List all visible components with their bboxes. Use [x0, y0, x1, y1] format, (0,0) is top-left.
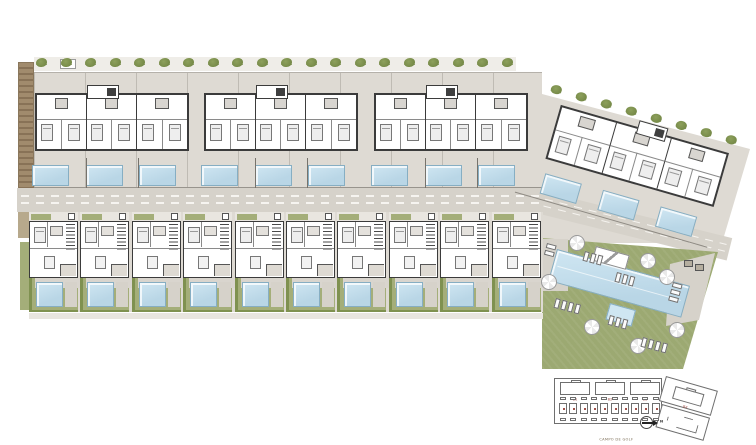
plan-terrace — [317, 264, 333, 276]
tree-icon — [725, 134, 738, 146]
bed — [457, 124, 469, 141]
bed — [380, 124, 392, 141]
tree-icon — [208, 58, 219, 67]
room-wall-line — [331, 119, 332, 149]
apartment-unit — [206, 95, 256, 149]
apartment-unit — [137, 95, 187, 149]
bed — [664, 167, 682, 187]
plan-terrace — [60, 264, 76, 276]
room-wall-line — [407, 222, 408, 247]
tree-icon — [257, 58, 268, 67]
private-pool — [87, 282, 114, 307]
tree-icon — [85, 58, 96, 67]
dining-table — [301, 256, 312, 269]
parasol-icon — [569, 235, 585, 251]
bed — [41, 124, 53, 141]
room-wall-line — [184, 248, 231, 249]
plan-terrace — [163, 264, 179, 276]
tree-icon — [330, 58, 341, 67]
keyplan-townhouse — [621, 403, 629, 414]
townhouse-plan — [29, 221, 78, 278]
terrace-divider — [307, 158, 308, 188]
private-pool — [425, 165, 462, 186]
keyplan-garage — [642, 397, 648, 400]
room-wall-line — [510, 222, 511, 247]
keyplan-unit-label-dot — [645, 408, 647, 410]
apartment-unit — [87, 95, 137, 149]
keyplan-townhouse — [641, 403, 649, 414]
bed — [91, 124, 103, 141]
private-pool — [344, 282, 371, 307]
private-pool — [139, 165, 176, 186]
garden-deck — [322, 282, 334, 307]
townhouse — [286, 212, 335, 312]
room-wall-line — [338, 248, 385, 249]
private-pool — [371, 165, 408, 186]
tree-icon — [379, 58, 390, 67]
room-wall-line — [390, 248, 437, 249]
room-wall-line — [111, 119, 112, 149]
room-wall-line — [230, 119, 231, 149]
room-wall-line — [304, 222, 305, 247]
tree-icon — [502, 58, 513, 67]
dining-table — [250, 256, 261, 269]
garden-deck — [65, 282, 77, 307]
wet-core — [494, 98, 508, 109]
keyplan-building-bump — [686, 387, 696, 393]
keyplan-unit-label-dot — [594, 408, 596, 410]
garden-deck — [116, 282, 128, 307]
keyplan-unit-label-dot — [625, 408, 627, 410]
entry-planter — [391, 214, 411, 220]
room-wall-line — [493, 248, 540, 249]
tree-icon — [453, 58, 464, 67]
tree-icon — [575, 91, 588, 103]
wet-core — [274, 98, 288, 109]
private-pool — [308, 165, 345, 186]
apartment-unit — [37, 95, 87, 149]
keyplan-building-bump — [606, 380, 616, 383]
bath-block — [50, 226, 63, 236]
road-lane-dash — [21, 195, 541, 197]
room-wall-line — [98, 222, 99, 247]
bed — [85, 227, 97, 243]
room-wall-line — [441, 248, 488, 249]
tree-icon — [134, 58, 145, 67]
tree-icon — [477, 58, 488, 67]
keyplan-garage — [581, 418, 587, 421]
townhouse — [389, 212, 438, 312]
tree-icon — [428, 58, 439, 67]
room-wall-line — [47, 222, 48, 247]
keyplan-unit-label-dot — [615, 408, 617, 410]
keyplan-building: B4 — [672, 386, 704, 407]
terrace-divider — [86, 158, 87, 188]
bed — [142, 124, 154, 141]
tree-icon — [110, 58, 121, 67]
townhouse-plan — [183, 221, 232, 278]
room-wall-line — [287, 248, 334, 249]
keyplan-garage — [601, 397, 607, 400]
private-pool — [499, 282, 526, 307]
room-wall-line — [355, 222, 356, 247]
apartment-unit — [376, 95, 426, 149]
keyplan-building: B1 — [560, 382, 590, 395]
bath-block — [513, 226, 526, 236]
wet-core — [394, 98, 408, 109]
private-pool — [255, 165, 292, 186]
parasol-icon — [541, 274, 557, 290]
townhouse — [183, 212, 232, 312]
room-wall-line — [629, 153, 638, 181]
keyplan-townhouse — [569, 403, 577, 414]
entry-planter — [339, 214, 359, 220]
entry-box — [274, 213, 281, 220]
wet-core — [578, 116, 596, 130]
plan-terrace — [266, 264, 282, 276]
private-pool — [190, 282, 217, 307]
bed — [68, 124, 80, 141]
bed — [118, 124, 130, 141]
room-wall-line — [81, 248, 128, 249]
bath-block — [410, 226, 423, 236]
dining-table — [455, 256, 466, 269]
townhouse — [29, 212, 78, 312]
tree-icon — [306, 58, 317, 67]
garden-deck — [528, 282, 540, 307]
keyplan-building: B2 — [595, 382, 625, 395]
plan-terrace — [523, 264, 539, 276]
wet-core — [155, 98, 169, 109]
private-garden — [80, 278, 129, 312]
keyplan-garage — [632, 397, 638, 400]
tree-icon — [625, 105, 638, 117]
bed — [311, 124, 323, 141]
entry-box — [479, 213, 486, 220]
entry-planter — [185, 214, 205, 220]
keyplan-caption-text: CAMPO DE GOLF — [599, 438, 633, 442]
tree-icon — [159, 58, 170, 67]
private-garden — [286, 278, 335, 312]
dining-table — [44, 256, 55, 269]
keyplan-garage — [601, 418, 607, 421]
road — [17, 188, 545, 212]
tree-icon — [600, 98, 613, 110]
townhouse-plan — [286, 221, 335, 278]
keyplan-building-bump — [571, 380, 581, 383]
private-garden — [337, 278, 386, 312]
private-pool — [540, 173, 582, 204]
apartment-unit — [657, 139, 726, 205]
private-garden — [29, 278, 78, 312]
private-pool — [597, 190, 639, 221]
keyplan-unit-label-dot — [604, 408, 606, 410]
keyplan-garage — [622, 418, 628, 421]
keyplan-unit-label-dot — [635, 408, 637, 410]
lower-path-strip — [29, 313, 543, 319]
north-label: N — [660, 420, 663, 424]
private-garden — [389, 278, 438, 312]
apartment-unit — [426, 95, 476, 149]
dining-table — [404, 256, 415, 269]
keyplan-townhouse — [590, 403, 598, 414]
plan-terrace — [471, 264, 487, 276]
parasol-icon — [584, 319, 600, 335]
entry-planter — [82, 214, 102, 220]
townhouse-plan — [492, 221, 541, 278]
bed — [34, 227, 46, 243]
private-pool — [293, 282, 320, 307]
tree-icon — [281, 58, 292, 67]
terrace-divider — [255, 158, 256, 188]
dining-table — [352, 256, 363, 269]
tree-icon — [232, 58, 243, 67]
room-wall-line — [501, 119, 502, 149]
room-wall-line — [574, 137, 583, 165]
keyplan-townhouse — [652, 403, 660, 414]
apartment-building — [204, 93, 358, 151]
bed — [291, 227, 303, 243]
townhouse — [337, 212, 386, 312]
room-wall-line — [400, 119, 401, 149]
garden-deck — [373, 282, 385, 307]
planter-box — [684, 260, 693, 267]
plan-terrace — [214, 264, 230, 276]
entry-planter — [237, 214, 257, 220]
bed — [584, 144, 601, 164]
terrace-divider — [477, 158, 478, 188]
tree-icon — [355, 58, 366, 67]
private-pool — [36, 282, 63, 307]
terrace-divider — [425, 158, 426, 188]
entry-planter — [442, 214, 462, 220]
terrace-divider — [138, 158, 139, 188]
room-wall-line — [280, 119, 281, 149]
private-garden — [440, 278, 489, 312]
keyplan-garage — [612, 418, 618, 421]
entry-planter — [134, 214, 154, 220]
keyplan-garage — [560, 397, 566, 400]
tree-icon — [61, 58, 72, 67]
keyplan-garage — [560, 418, 566, 421]
wet-core — [324, 98, 338, 109]
entry-box — [119, 213, 126, 220]
entry-box — [171, 213, 178, 220]
keyplan-building: B3 — [630, 382, 660, 395]
keyplan-garage — [622, 397, 628, 400]
garden-deck — [271, 282, 283, 307]
roof-hatch — [276, 88, 285, 96]
dining-table — [198, 256, 209, 269]
private-pool — [242, 282, 269, 307]
bed — [237, 124, 249, 141]
dining-table — [507, 256, 518, 269]
garden-deck — [425, 282, 437, 307]
garden-deck — [476, 282, 488, 307]
keyplan-building-bump — [641, 380, 651, 383]
bed — [287, 124, 299, 141]
bed — [430, 124, 442, 141]
site-plan-canvas: B4 CAMPO DE GOLF N B1B2B3 — [0, 0, 756, 443]
plan-terrace — [111, 264, 127, 276]
north-arrow: N — [638, 414, 678, 432]
keyplan-townhouse — [600, 403, 608, 414]
private-pool — [447, 282, 474, 307]
wet-core — [688, 147, 706, 161]
private-pool — [139, 282, 166, 307]
keyplan-unit-label-dot — [584, 408, 586, 410]
apartment-building — [374, 93, 528, 151]
keyplan-unit-label-dot — [563, 408, 565, 410]
dining-table — [147, 256, 158, 269]
keyplan-garage — [642, 418, 648, 421]
keyplan-garage — [653, 418, 659, 421]
bed — [555, 136, 572, 156]
bed — [639, 160, 656, 180]
apartment-building — [35, 93, 189, 151]
townhouse-plan — [440, 221, 489, 278]
keyplan-townhouse — [611, 403, 619, 414]
plan-terrace — [420, 264, 436, 276]
apartment-unit — [476, 95, 526, 149]
tree-icon — [183, 58, 194, 67]
entry-box — [428, 213, 435, 220]
parasol-icon — [669, 322, 685, 338]
keyplan-garage — [591, 397, 597, 400]
entry-box — [68, 213, 75, 220]
townhouse — [492, 212, 541, 312]
keyplan-garage — [570, 397, 576, 400]
townhouse-plan — [80, 221, 129, 278]
bed — [445, 227, 457, 243]
key-plan: B4 CAMPO DE GOLF N B1B2B3 — [552, 372, 752, 438]
private-pool — [32, 165, 69, 186]
bed — [260, 124, 272, 141]
townhouse-plan — [337, 221, 386, 278]
bed — [342, 227, 354, 243]
apartment-unit — [256, 95, 306, 149]
bed — [338, 124, 350, 141]
road-lane-dash — [21, 202, 541, 204]
tree-icon — [36, 58, 47, 67]
wet-core — [224, 98, 238, 109]
private-garden — [183, 278, 232, 312]
private-garden — [492, 278, 541, 312]
townhouse — [235, 212, 284, 312]
entry-planter — [494, 214, 514, 220]
townhouse-plan — [132, 221, 181, 278]
garden-deck — [168, 282, 180, 307]
entry-box — [376, 213, 383, 220]
townhouse-plan — [389, 221, 438, 278]
parasol-icon — [640, 253, 656, 269]
private-garden — [132, 278, 181, 312]
townhouse — [132, 212, 181, 312]
bath-block — [101, 226, 114, 236]
bed — [508, 124, 520, 141]
bed — [407, 124, 419, 141]
wet-core — [444, 98, 458, 109]
garden-deck — [219, 282, 231, 307]
townhouse — [440, 212, 489, 312]
bed — [394, 227, 406, 243]
keyplan-garage — [653, 397, 659, 400]
bath-block — [461, 226, 474, 236]
room-wall-line — [162, 119, 163, 149]
keyplan-townhouse — [631, 403, 639, 414]
room-wall-line — [253, 222, 254, 247]
keyplan-garage — [570, 418, 576, 421]
bed — [137, 227, 149, 243]
tree-icon — [675, 120, 688, 132]
keyplan-unit-label-dot — [656, 408, 658, 410]
entry-planter — [288, 214, 308, 220]
private-pool — [201, 165, 238, 186]
bath-block — [358, 226, 371, 236]
tree-icon — [550, 84, 563, 96]
bath-block — [153, 226, 166, 236]
planter-box — [695, 264, 704, 271]
bath-block — [204, 226, 217, 236]
room-wall-line — [133, 248, 180, 249]
dining-table — [95, 256, 106, 269]
roof-hatch — [107, 88, 116, 96]
townhouse-plan — [235, 221, 284, 278]
tree-icon — [700, 127, 713, 139]
keyplan-garage — [581, 397, 587, 400]
entry-box — [531, 213, 538, 220]
plan-terrace — [368, 264, 384, 276]
keyplan-unit-label-dot — [573, 408, 575, 410]
private-pool — [655, 206, 697, 237]
bed — [609, 151, 626, 171]
private-garden — [235, 278, 284, 312]
bed — [188, 227, 200, 243]
wet-core — [105, 98, 119, 109]
private-pool — [86, 165, 123, 186]
keyplan-garage — [591, 418, 597, 421]
bed — [210, 124, 222, 141]
bed — [240, 227, 252, 243]
keyplan-townhouse — [580, 403, 588, 414]
room-wall-line — [150, 222, 151, 247]
entry-box — [222, 213, 229, 220]
wet-core — [55, 98, 69, 109]
entry-box — [325, 213, 332, 220]
bed — [481, 124, 493, 141]
bed — [169, 124, 181, 141]
room-wall-line — [236, 248, 283, 249]
apartment-unit — [306, 95, 356, 149]
bath-block — [307, 226, 320, 236]
entry-planter — [31, 214, 51, 220]
room-wall-line — [201, 222, 202, 247]
private-pool — [478, 165, 515, 186]
keyplan-garage — [632, 418, 638, 421]
bed — [497, 227, 509, 243]
keyplan-townhouse — [559, 403, 567, 414]
townhouse — [80, 212, 129, 312]
keyplan-garage — [612, 397, 618, 400]
bath-block — [256, 226, 269, 236]
room-wall-line — [450, 119, 451, 149]
room-wall-line — [61, 119, 62, 149]
room-wall-line — [684, 168, 693, 196]
room-wall-line — [458, 222, 459, 247]
roof-hatch — [446, 88, 455, 96]
room-wall-line — [30, 248, 77, 249]
bed — [694, 176, 712, 196]
